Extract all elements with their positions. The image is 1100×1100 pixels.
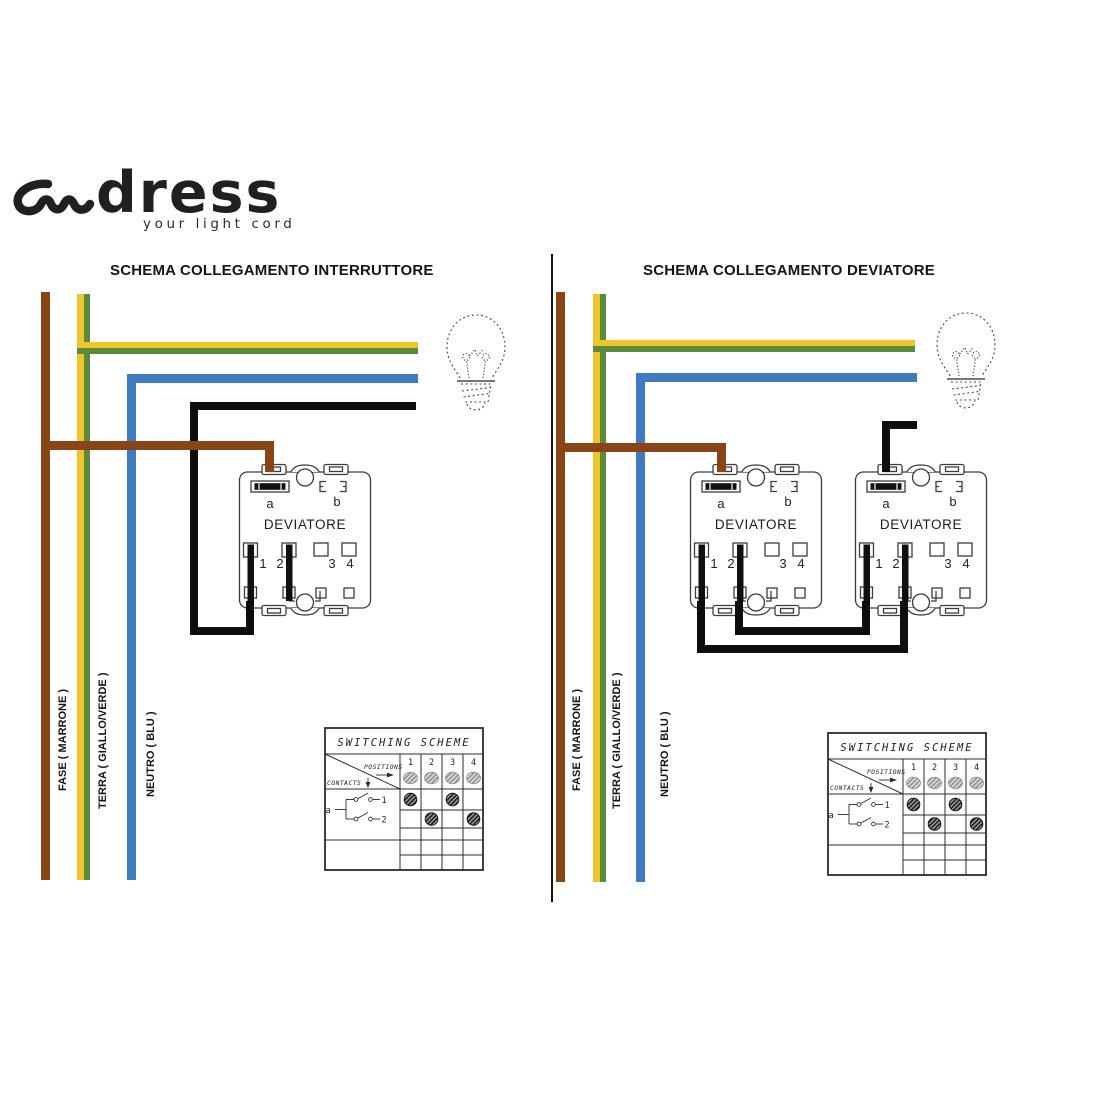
terminal-2-wire-bar	[902, 545, 909, 602]
terra-wire-label-left: TERRA ( GIALLO/VERDE )	[97, 673, 109, 809]
position-col-3: 3	[953, 763, 958, 773]
terminal-4-socket	[793, 543, 807, 556]
neutro-wire-label-left: NEUTRO ( BLU )	[145, 711, 157, 797]
switch-body	[240, 465, 371, 616]
switch-device-deviatore-2: a b DEVIATORE 1 2 3 4	[853, 461, 989, 619]
fase-wire-label-left: FASE ( MARRONE )	[57, 689, 69, 791]
active-dot	[907, 798, 920, 811]
neutro-wire-label-right: NEUTRO ( BLU )	[659, 711, 671, 797]
brand-logo: dress your light cord	[10, 142, 310, 237]
terminal-2-label: 2	[727, 556, 734, 571]
contact-schematic: a 1 2	[828, 798, 889, 831]
terminal-1-label: 1	[875, 556, 882, 571]
switch-device-interruttore: a b DEVIATORE 1 2 3 4	[237, 461, 373, 619]
terminal-2-wire-bar	[286, 545, 293, 602]
positions-label: POSITIONS	[364, 764, 403, 771]
position-knob-icon	[949, 777, 963, 789]
position-knob-icon	[446, 772, 460, 784]
switching-scheme-table-right: SWITCHING SCHEME POSITIONS CONTACTS 1 2 …	[827, 732, 987, 876]
fase-branch-horizontal-left	[41, 441, 270, 450]
terra-wire-horizontal-green-right	[593, 346, 915, 352]
terminal-1-wire-bar	[864, 545, 871, 602]
lamp-return-wire-bottom-left	[190, 627, 254, 635]
terminal-4-label: 4	[346, 556, 353, 571]
active-dot	[949, 798, 962, 811]
position-knob-icon	[970, 777, 984, 789]
fase-wire-label-right: FASE ( MARRONE )	[571, 689, 583, 791]
contact-group-label: a	[828, 811, 833, 821]
left-panel-title: SCHEMA COLLEGAMENTO INTERRUTTORE	[110, 262, 434, 279]
panel-divider-line	[551, 254, 553, 902]
terra-wire-vertical-yellow-left	[77, 294, 84, 880]
position-col-1: 1	[408, 758, 413, 768]
table-title: SWITCHING SCHEME	[840, 742, 973, 754]
switch-name-label: DEVIATORE	[880, 517, 962, 532]
terminal-a-label: a	[266, 496, 274, 511]
lamp-wire-elbow-vertical-right	[882, 421, 890, 472]
terminal-3-socket	[314, 543, 328, 556]
contact-group-label: a	[325, 806, 330, 816]
position-col-3: 3	[450, 758, 455, 768]
terminal-b-label: b	[949, 494, 956, 509]
lamp-return-wire-stub-terminal1	[246, 601, 254, 635]
terminal-1-wire-bar	[248, 545, 255, 602]
logo-wave-icon	[18, 184, 90, 211]
lamp-return-wire-top-left	[190, 402, 416, 410]
terminal-2-label: 2	[892, 556, 899, 571]
contact-row-1: 1	[884, 801, 889, 811]
terminal-3-socket	[930, 543, 944, 556]
active-dot	[446, 793, 459, 806]
position-col-2: 2	[429, 758, 434, 768]
terra-wire-label-right: TERRA ( GIALLO/VERDE )	[611, 673, 623, 809]
terminal-2-label: 2	[276, 556, 283, 571]
contact-row-1: 1	[381, 796, 386, 806]
traveler-outer-horizontal	[697, 645, 908, 653]
position-col-1: 1	[911, 763, 916, 773]
switch-body	[856, 465, 987, 616]
neutro-wire-horizontal-right	[636, 373, 917, 382]
neutro-wire-horizontal-left	[127, 374, 418, 383]
lamp-return-wire-vertical-left	[190, 402, 198, 635]
fase-wire-vertical-right	[556, 292, 565, 882]
active-dot	[404, 793, 417, 806]
terra-wire-vertical-green-right	[600, 294, 606, 882]
light-bulb-illustration-left	[436, 312, 516, 418]
terminal-2-wire-bar	[737, 545, 744, 602]
terminal-b-label: b	[784, 494, 791, 509]
terminal-4-label: 4	[962, 556, 969, 571]
position-knob-icon	[907, 777, 921, 789]
position-knob-icon	[467, 772, 481, 784]
terminal-3-label: 3	[779, 556, 786, 571]
position-col-4: 4	[974, 763, 979, 773]
contact-row-2: 2	[884, 821, 889, 831]
active-dot	[970, 818, 983, 831]
terra-wire-horizontal-green-left	[77, 348, 418, 354]
switching-scheme-table-left: SWITCHING SCHEME POSITIONS CONTACTS 1 2 …	[324, 727, 484, 871]
terminal-1-label: 1	[710, 556, 717, 571]
terminal-a-label: a	[882, 496, 890, 511]
switch-name-label: DEVIATORE	[715, 517, 797, 532]
terminal-3-label: 3	[944, 556, 951, 571]
position-col-4: 4	[471, 758, 476, 768]
position-knob-icon	[928, 777, 942, 789]
terminal-b-label: b	[333, 494, 340, 509]
terra-wire-vertical-green-left	[84, 294, 90, 880]
contact-schematic: a 1 2	[325, 793, 386, 826]
terminal-4-socket	[342, 543, 356, 556]
brand-tagline: your light cord	[143, 216, 295, 232]
fase-wire-vertical-left	[41, 292, 50, 880]
position-knob-icon	[425, 772, 439, 784]
terminal-3-socket	[765, 543, 779, 556]
fase-branch-stub-terminal-a-right	[717, 443, 726, 472]
fase-branch-horizontal-right	[556, 443, 721, 452]
light-bulb-illustration-right	[926, 310, 1006, 416]
active-dot	[425, 813, 438, 826]
position-col-2: 2	[932, 763, 937, 773]
terminal-a-label: a	[717, 496, 725, 511]
table-title: SWITCHING SCHEME	[337, 737, 470, 749]
terminal-3-label: 3	[328, 556, 335, 571]
position-knob-icon	[404, 772, 418, 784]
contacts-label: CONTACTS	[830, 785, 864, 792]
contacts-label: CONTACTS	[327, 780, 361, 787]
terminal-4-label: 4	[797, 556, 804, 571]
switch-name-label: DEVIATORE	[264, 517, 346, 532]
traveler-inner-horizontal	[735, 627, 870, 635]
positions-label: POSITIONS	[867, 769, 906, 776]
terminal-1-wire-bar	[699, 545, 706, 602]
terminal-4-socket	[958, 543, 972, 556]
switch-device-deviatore-1: a b DEVIATORE 1 2 3 4	[688, 461, 824, 619]
terminal-1-label: 1	[259, 556, 266, 571]
fase-branch-stub-terminal-a-left	[265, 441, 274, 472]
active-dot	[467, 813, 480, 826]
terra-wire-vertical-yellow-right	[593, 294, 600, 882]
active-dot	[928, 818, 941, 831]
switch-body	[691, 465, 822, 616]
traveler-outer-vertical-2	[900, 601, 908, 653]
traveler-inner-vertical-2	[862, 601, 870, 635]
contact-row-2: 2	[381, 816, 386, 826]
wiring-diagram-sheet: dress your light cord SCHEMA COLLEGAMENT…	[0, 0, 1100, 1100]
right-panel-title: SCHEMA COLLEGAMENTO DEVIATORE	[643, 262, 935, 279]
